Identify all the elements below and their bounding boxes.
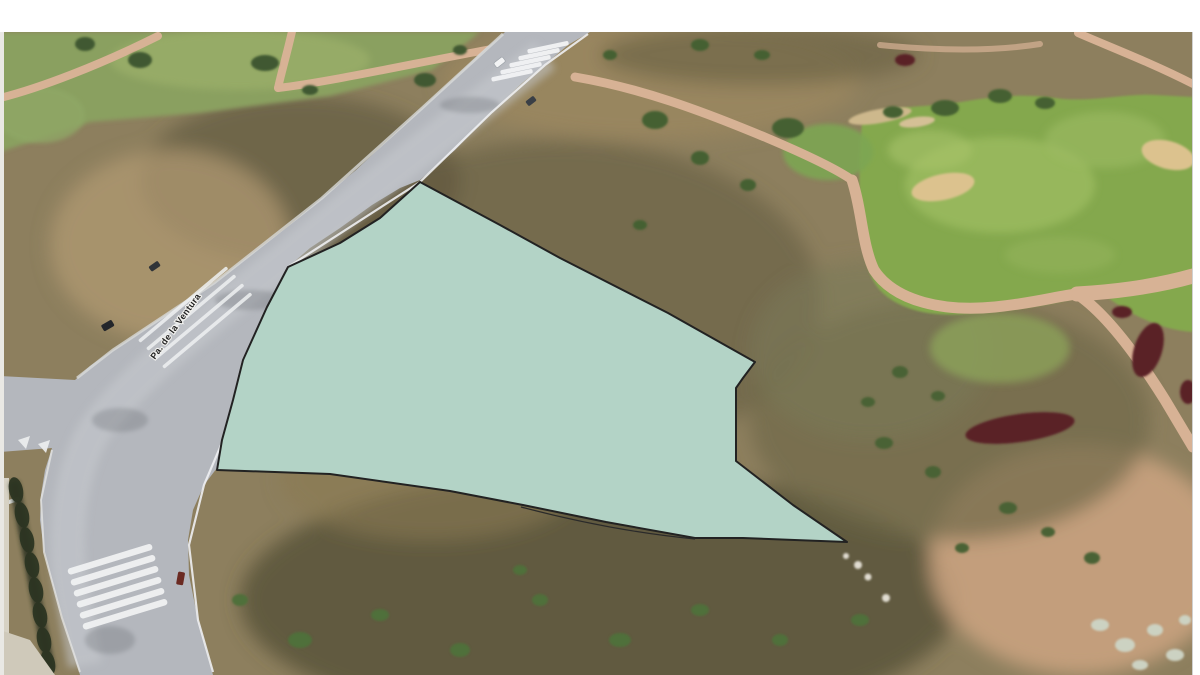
screenshot-root: Pa. de la Ventura <box>0 0 1200 675</box>
aerial-map-view[interactable]: Pa. de la Ventura <box>0 0 1200 675</box>
top-margin <box>0 0 1200 32</box>
right-margin <box>1193 0 1200 675</box>
left-edge-strip <box>0 32 4 675</box>
aerial-photo: Pa. de la Ventura <box>0 20 1200 675</box>
